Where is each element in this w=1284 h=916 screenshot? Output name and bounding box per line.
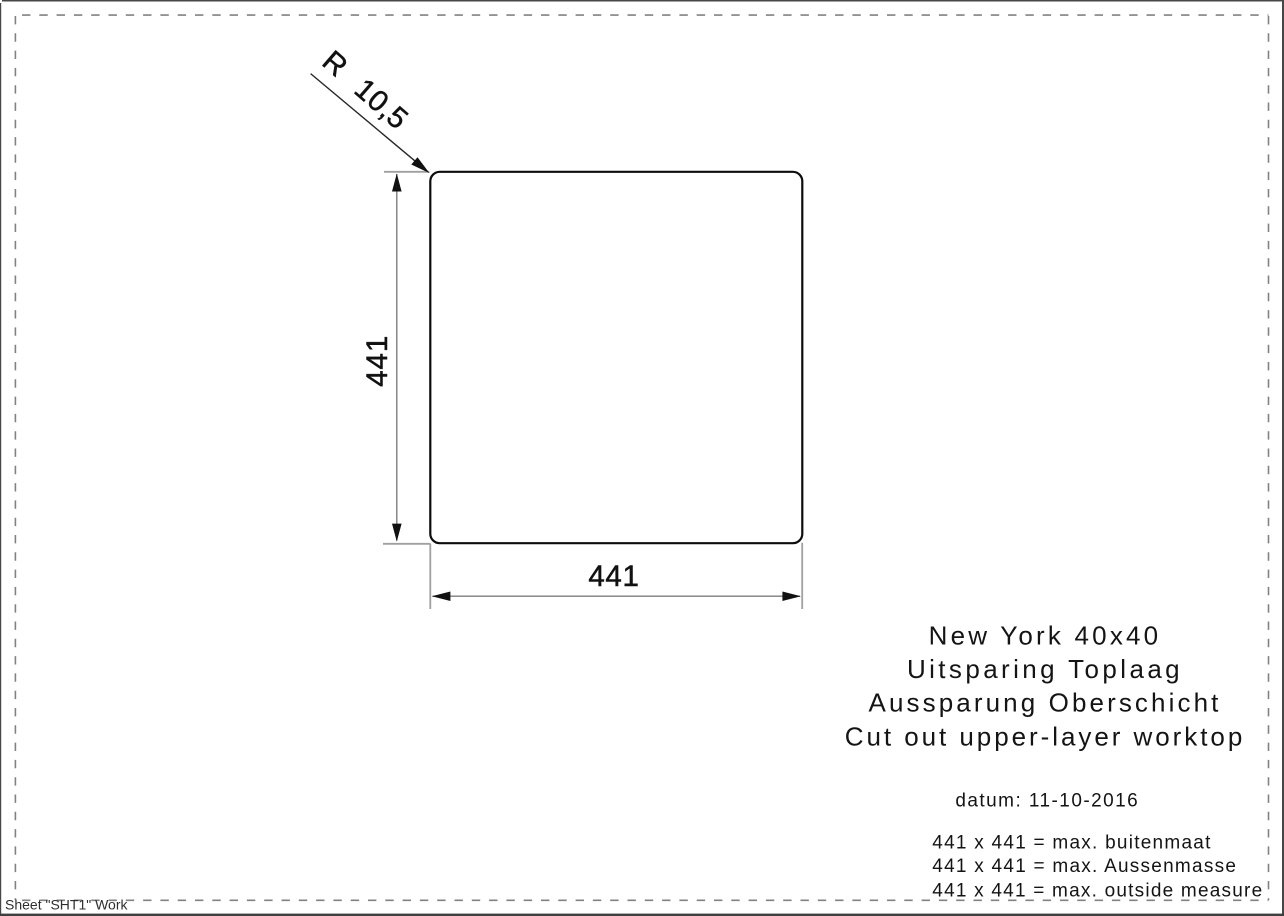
svg-text:441: 441 — [588, 560, 639, 593]
svg-text:Sheet "SHT1" Work: Sheet "SHT1" Work — [5, 897, 129, 913]
svg-text:datum: 11-10-2016: datum: 11-10-2016 — [955, 790, 1139, 811]
svg-text:441 x 441 = max. buitenmaat: 441 x 441 = max. buitenmaat — [932, 833, 1211, 854]
svg-text:441: 441 — [361, 335, 394, 387]
svg-text:Uitsparing Toplaag: Uitsparing Toplaag — [907, 654, 1183, 684]
svg-text:Aussparung Oberschicht: Aussparung Oberschicht — [869, 688, 1222, 718]
svg-text:New York 40x40: New York 40x40 — [929, 621, 1162, 651]
svg-text:441 x 441 = max. Aussenmasse: 441 x 441 = max. Aussenmasse — [932, 856, 1237, 877]
svg-text:441 x 441 = max. outside measu: 441 x 441 = max. outside measure — [932, 880, 1263, 901]
svg-text:Cut out upper-layer worktop: Cut out upper-layer worktop — [845, 722, 1245, 752]
